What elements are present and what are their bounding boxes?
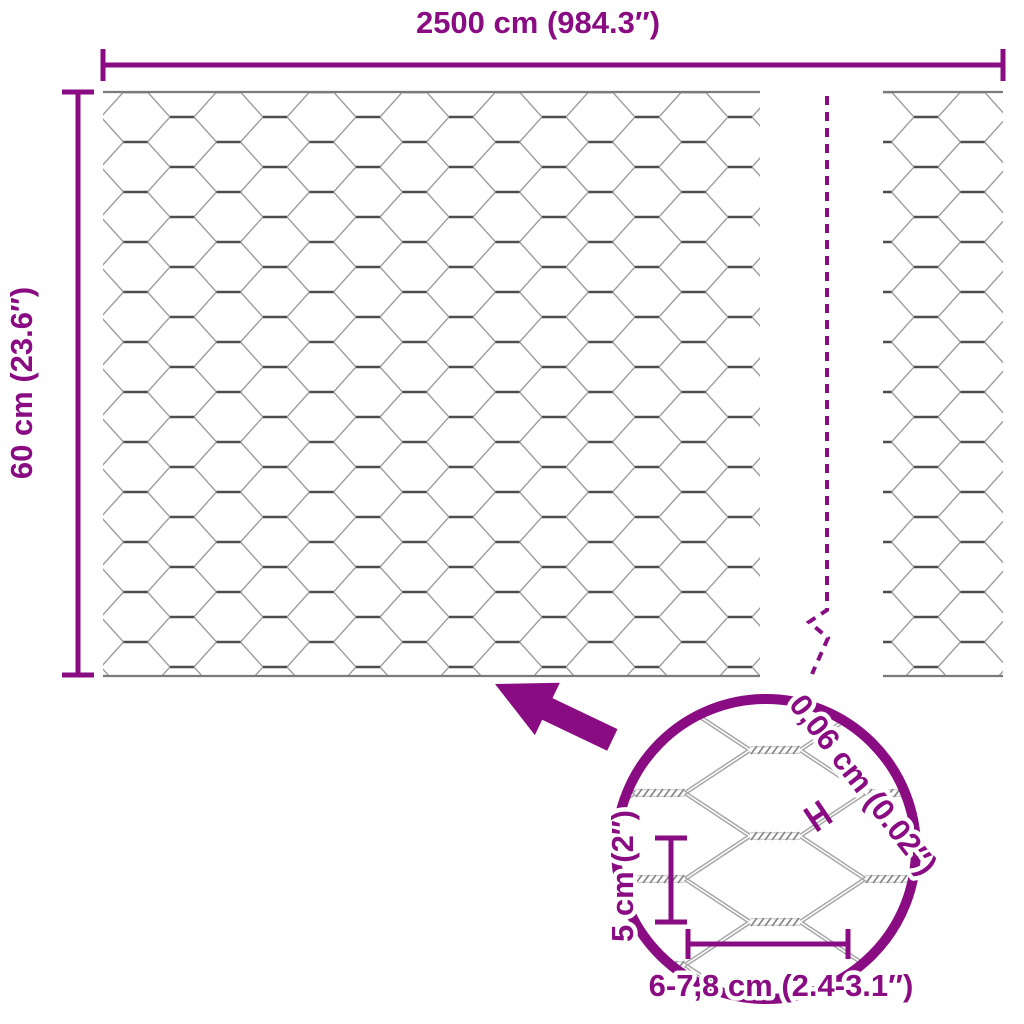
mesh-texture <box>103 92 760 676</box>
mesh-panel-main <box>103 92 760 676</box>
mesh-height-label: 5 cm (2″) <box>605 810 640 942</box>
detail-magnifier: 0,06 cm (0.02″) 5 cm (2″) 6-7,8 cm (2.4-… <box>605 688 944 1006</box>
mesh-panel-continuation <box>883 92 1003 676</box>
wire-mesh-dimension-diagram: 2500 cm (984.3″) 60 cm (23.6″) 0,06 cm (… <box>0 0 1024 1024</box>
height-dimension-label: 60 cm (23.6″) <box>4 287 39 479</box>
diagram-canvas: 2500 cm (984.3″) 60 cm (23.6″) 0,06 cm (… <box>0 0 1024 1024</box>
mesh-texture <box>883 92 1003 676</box>
width-dimension-label: 2500 cm (984.3″) <box>416 5 660 40</box>
break-line-icon <box>809 96 828 674</box>
mesh-width-label: 6-7,8 cm (2.4-3.1″) <box>649 968 914 1003</box>
width-dimension: 2500 cm (984.3″) <box>103 5 1003 81</box>
height-dimension: 60 cm (23.6″) <box>4 92 94 675</box>
